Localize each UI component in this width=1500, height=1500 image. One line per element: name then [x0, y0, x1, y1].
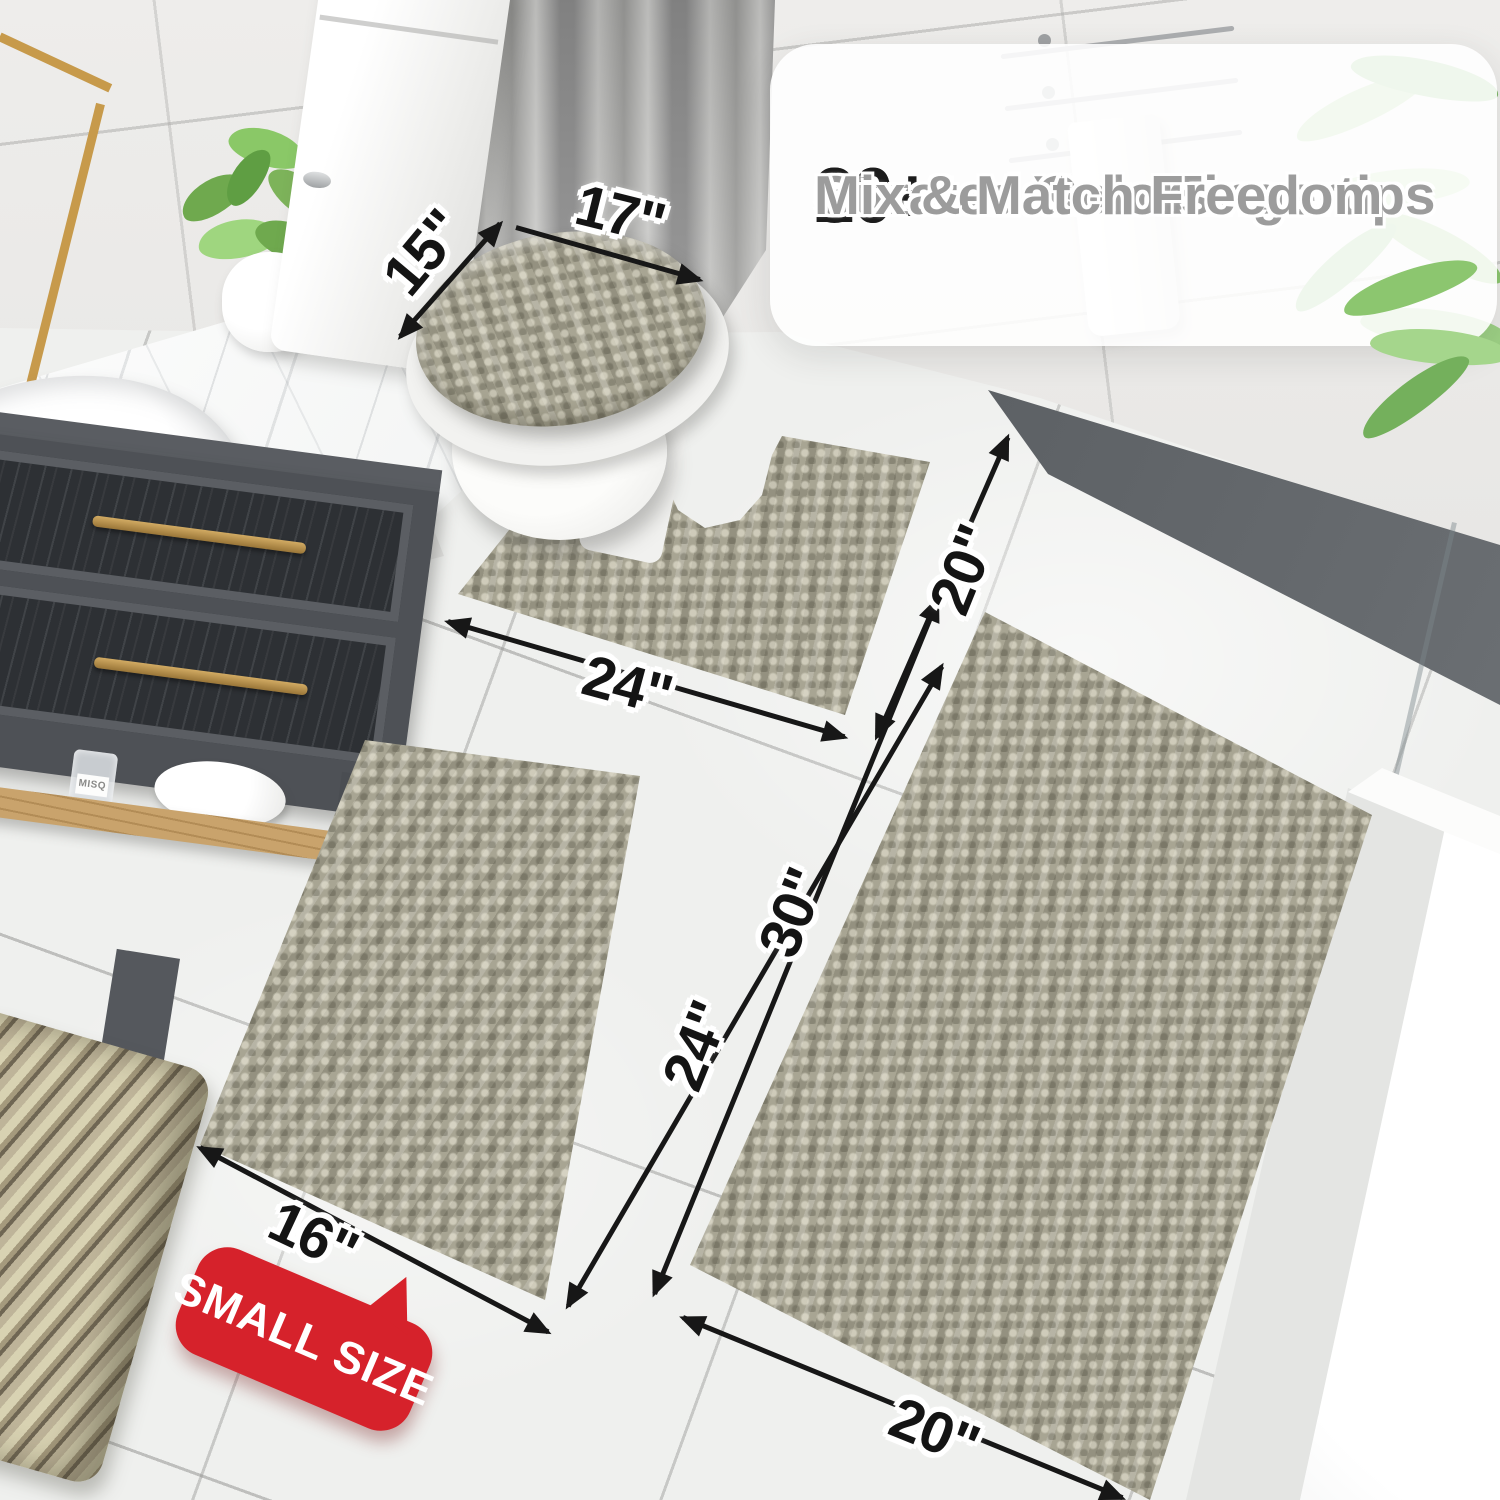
bottle-label: MISQ: [75, 773, 109, 797]
callout-label: Mix & Match Freedom: [814, 168, 1382, 223]
product-scene: MISQ 15" 17" 24": [0, 0, 1500, 1500]
flush-handle: [302, 170, 332, 190]
tank-lid-seam: [319, 15, 498, 45]
potted-plant-right-front: [1330, 250, 1500, 440]
